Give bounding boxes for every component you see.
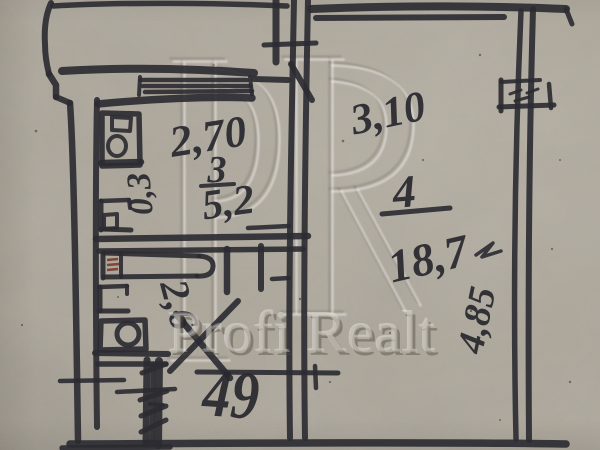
svg-text:0,3: 0,3: [120, 171, 161, 217]
svg-text:Profi Realt: Profi Realt: [168, 300, 436, 365]
svg-text:5,2: 5,2: [199, 177, 257, 230]
